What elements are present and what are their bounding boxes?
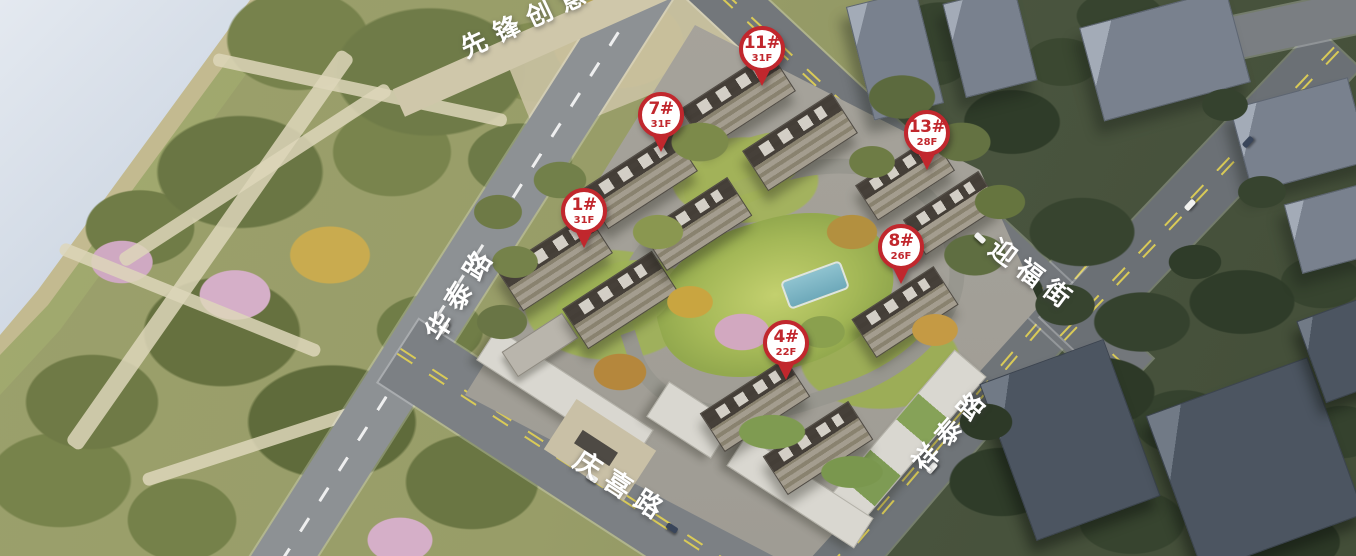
pin-floor-count: 26F [891,252,912,262]
pin-bubble: 11# 31F [739,26,785,72]
pin-floor-count: 31F [752,54,773,64]
pin-floor-count: 31F [574,216,595,226]
pin-bubble: 13# 28F [904,110,950,156]
pin-floor-count: 31F [651,120,672,130]
building-pin-8[interactable]: 8# 26F [878,224,924,284]
building-pin-4[interactable]: 4# 22F [763,320,809,380]
building-pin-11[interactable]: 11# 31F [739,26,785,86]
building-pin-1[interactable]: 1# 31F [561,188,607,248]
pin-building-number: 7# [648,101,673,118]
pin-building-number: 11# [744,35,780,52]
pin-bubble: 4# 22F [763,320,809,366]
pin-building-number: 8# [888,233,913,250]
pin-building-number: 1# [571,197,596,214]
pin-building-number: 4# [773,329,798,346]
site-plan-aerial-view: 先锋创意 华泰路 庆喜路 祥泰路 迎福街 1# 31F 7# 31F 11# 3… [0,0,1356,556]
building-pin-13[interactable]: 13# 28F [904,110,950,170]
pin-bubble: 1# 31F [561,188,607,234]
pin-floor-count: 22F [776,348,797,358]
building-pin-7[interactable]: 7# 31F [638,92,684,152]
pin-building-number: 13# [909,119,945,136]
pin-floor-count: 28F [917,138,938,148]
pin-bubble: 7# 31F [638,92,684,138]
roadside-tree-clusters [0,0,1356,556]
pin-bubble: 8# 26F [878,224,924,270]
